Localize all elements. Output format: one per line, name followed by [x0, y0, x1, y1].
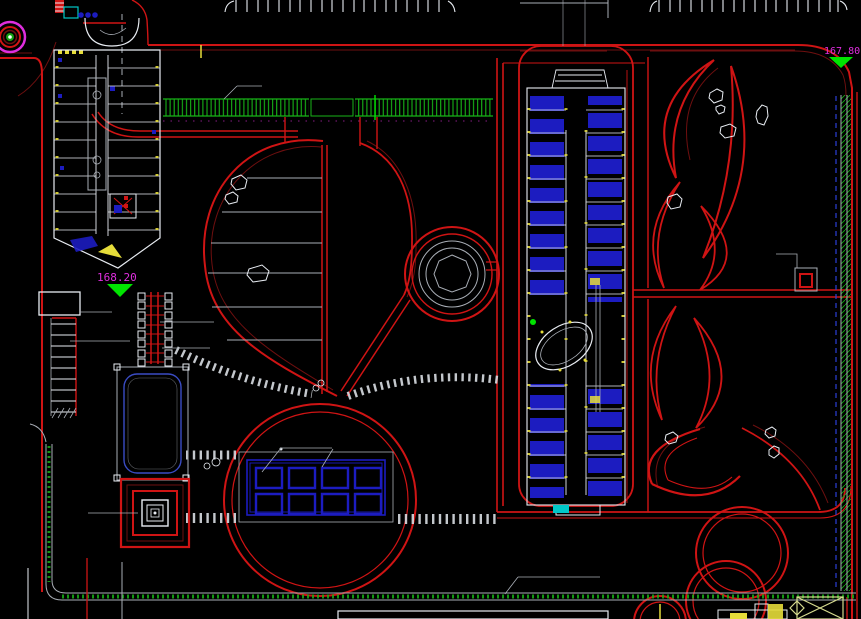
elevation-label-right: 167.80 — [824, 46, 860, 57]
entry-mat — [553, 505, 569, 513]
tree-dot — [530, 319, 536, 325]
drawing-viewport[interactable]: 168.20 167.80 — [0, 0, 861, 619]
elevation-label-left: 168.20 — [97, 271, 137, 284]
model-space: 168.20 167.80 — [0, 0, 861, 619]
